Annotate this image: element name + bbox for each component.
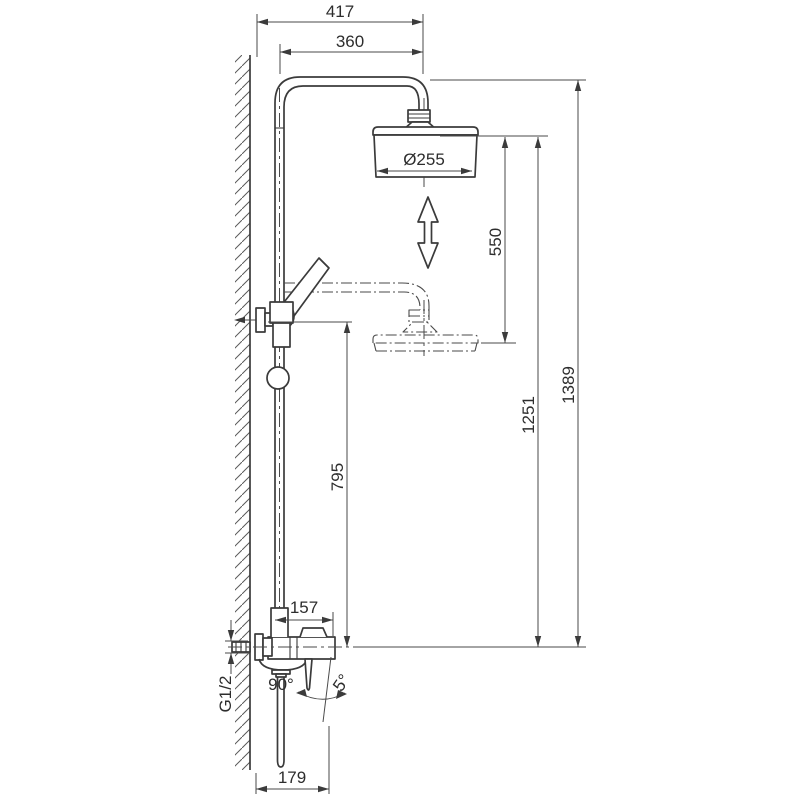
swing-arc-arrow-left-icon [296,689,307,697]
phantom-lower-position [284,283,478,356]
slider-clamp-upper [270,302,293,323]
dim-1251-label: 1251 [519,396,538,434]
phantom-head-cap [373,335,478,343]
dim-417-arrow-left [257,19,268,25]
phantom-head-side-left [374,343,376,351]
thread-size-label: G1/2 [216,676,235,713]
dim-795-label: 795 [328,463,347,491]
arm-nut [408,110,430,122]
dim-360-arrow-right [412,49,423,55]
spout-angle-label: 90° [268,675,294,694]
slider-clamp-lower [273,323,290,347]
shower-system-drawing: 417 360 Ø255 550 1251 1389 [0,0,800,800]
dim-417-label: 417 [326,2,354,21]
dim-1251-arrow-top [535,137,541,148]
dim-550-label: 550 [486,228,505,256]
dim-360-arrow-left [280,49,291,55]
dim-360-label: 360 [336,32,364,51]
handle-tilt-label: 5° [329,671,354,695]
dim-1251-arrow-bottom [535,636,541,647]
wall-bracket-flange [256,308,265,332]
handle-tilt-reference-line [323,657,331,722]
up-down-arrow-icon [418,197,438,268]
dim-1389-arrow-top [575,80,581,91]
mixer-handle-base [300,628,327,637]
wall-hatching [235,55,250,770]
wall-section [235,55,250,770]
dim-179-arrow-right [318,786,329,792]
overhead-shower [373,98,478,188]
dimensions: 417 360 Ø255 550 1251 1389 [216,2,586,794]
thread-arrow-top [228,630,234,641]
dim-157-arrow-right [322,617,333,623]
dim-417-arrow-right [412,19,423,25]
dim-550-arrow-top [502,137,508,148]
technical-drawing-page: 417 360 Ø255 550 1251 1389 [0,0,800,800]
dim-179-arrow-left [256,786,267,792]
head-top-cap [373,127,478,135]
phantom-cone [403,322,437,332]
dim-550-arrow-bottom [502,332,508,343]
dim-255-label: Ø255 [403,150,445,169]
dim-1389-arrow-bottom [575,636,581,647]
height-adjust-arrow [418,197,438,268]
dim-179-label: 179 [278,768,306,787]
mixer-body [268,637,335,659]
phantom-head-side-right [475,343,477,351]
dim-1389-label: 1389 [559,366,578,404]
slider-lock-knob [267,367,289,389]
mixer-lever-handle [305,659,312,690]
dim-795-arrow-bottom [344,636,350,647]
mixer-underside [259,659,307,670]
dim-795-arrow-top [344,322,350,333]
thread-arrow-bottom [228,653,234,664]
dim-157-label: 157 [290,598,318,617]
